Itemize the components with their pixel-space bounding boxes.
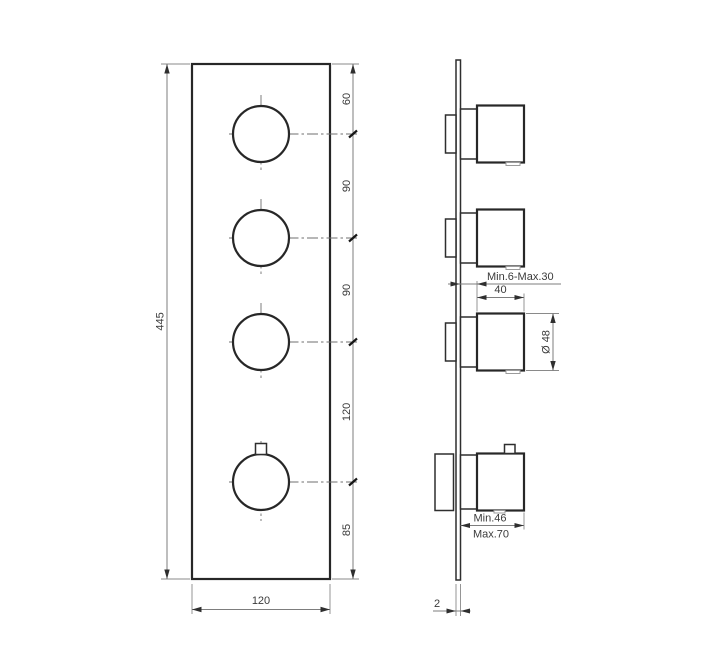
handle-circle-3 [233,314,289,370]
label-spacing-bottom: 85 [341,524,353,536]
label-plate-thickness: 2 [434,598,440,610]
handle-collar [461,455,478,509]
label-spacing-1: 90 [341,180,353,192]
handle-circle-2 [233,210,289,266]
arrowhead [321,607,331,612]
side-view: Min.6-Max.30 40 Ø 48 Min.46 Max.70 [433,60,561,616]
handle-front [477,314,524,371]
arrowhead [477,282,487,287]
valve-body-rear [446,323,457,361]
thermostat-handle-tab-front [256,444,267,455]
label-depth-adjust: Min.6-Max.30 [487,271,554,283]
arrowhead [515,523,525,528]
label-spacing-3: 120 [341,403,353,421]
label-handle-diameter: Ø 48 [541,330,553,354]
arrowhead [550,314,555,324]
handle-circle-1 [233,106,289,162]
dimension-spacing-chain: 60 90 90 120 85 [332,64,359,579]
arrowhead [461,609,471,614]
handle-base-notch [506,163,520,166]
dimension-plate-width: 120 [192,584,330,614]
thermostat-handle-tab-side [505,445,516,454]
valve-body-rear [446,219,457,257]
knob-profile-4-thermostat [435,445,524,514]
handle-base-notch [506,371,520,374]
label-handle-depth: 40 [494,284,506,296]
dimension-plate-thickness: 2 [433,584,471,616]
label-spacing-2: 90 [341,284,353,296]
label-spacing-top: 60 [341,93,353,105]
arrowhead [515,295,525,300]
arrowhead [350,64,355,74]
arrowhead [447,609,457,614]
valve-body-rear [446,115,457,153]
handle-collar [461,109,478,159]
arrowhead [550,361,555,371]
label-protrusion-min: Min.46 [473,513,506,525]
arrowhead [192,607,202,612]
dimension-protrusion: Min.46 Max.70 [461,513,525,541]
arrowhead [477,295,487,300]
handle-front [477,454,524,511]
front-view: 445 60 90 90 120 85 120 [155,64,360,614]
arrowhead [164,64,169,74]
dimension-handle-diameter: Ø 48 [526,314,559,371]
handle-collar [461,317,478,367]
label-plate-width: 120 [252,595,270,607]
label-total-height: 445 [155,312,167,330]
handle-front [477,106,524,163]
handle-collar [461,213,478,263]
handle-circle-4 [233,454,289,510]
arrowhead [461,523,471,528]
handle-base-notch [506,267,520,270]
arrowhead [164,570,169,580]
valve-body-rear [435,454,454,511]
arrowhead [350,570,355,580]
label-protrusion-max: Max.70 [473,529,509,541]
dimension-handle-depth: 40 [477,284,524,312]
handle-front [477,210,524,267]
shower-valve-dimension-drawing: 445 60 90 90 120 85 120 [0,0,708,663]
technical-drawing-canvas: 445 60 90 90 120 85 120 [0,0,708,663]
dimension-total-height: 445 [155,64,191,579]
